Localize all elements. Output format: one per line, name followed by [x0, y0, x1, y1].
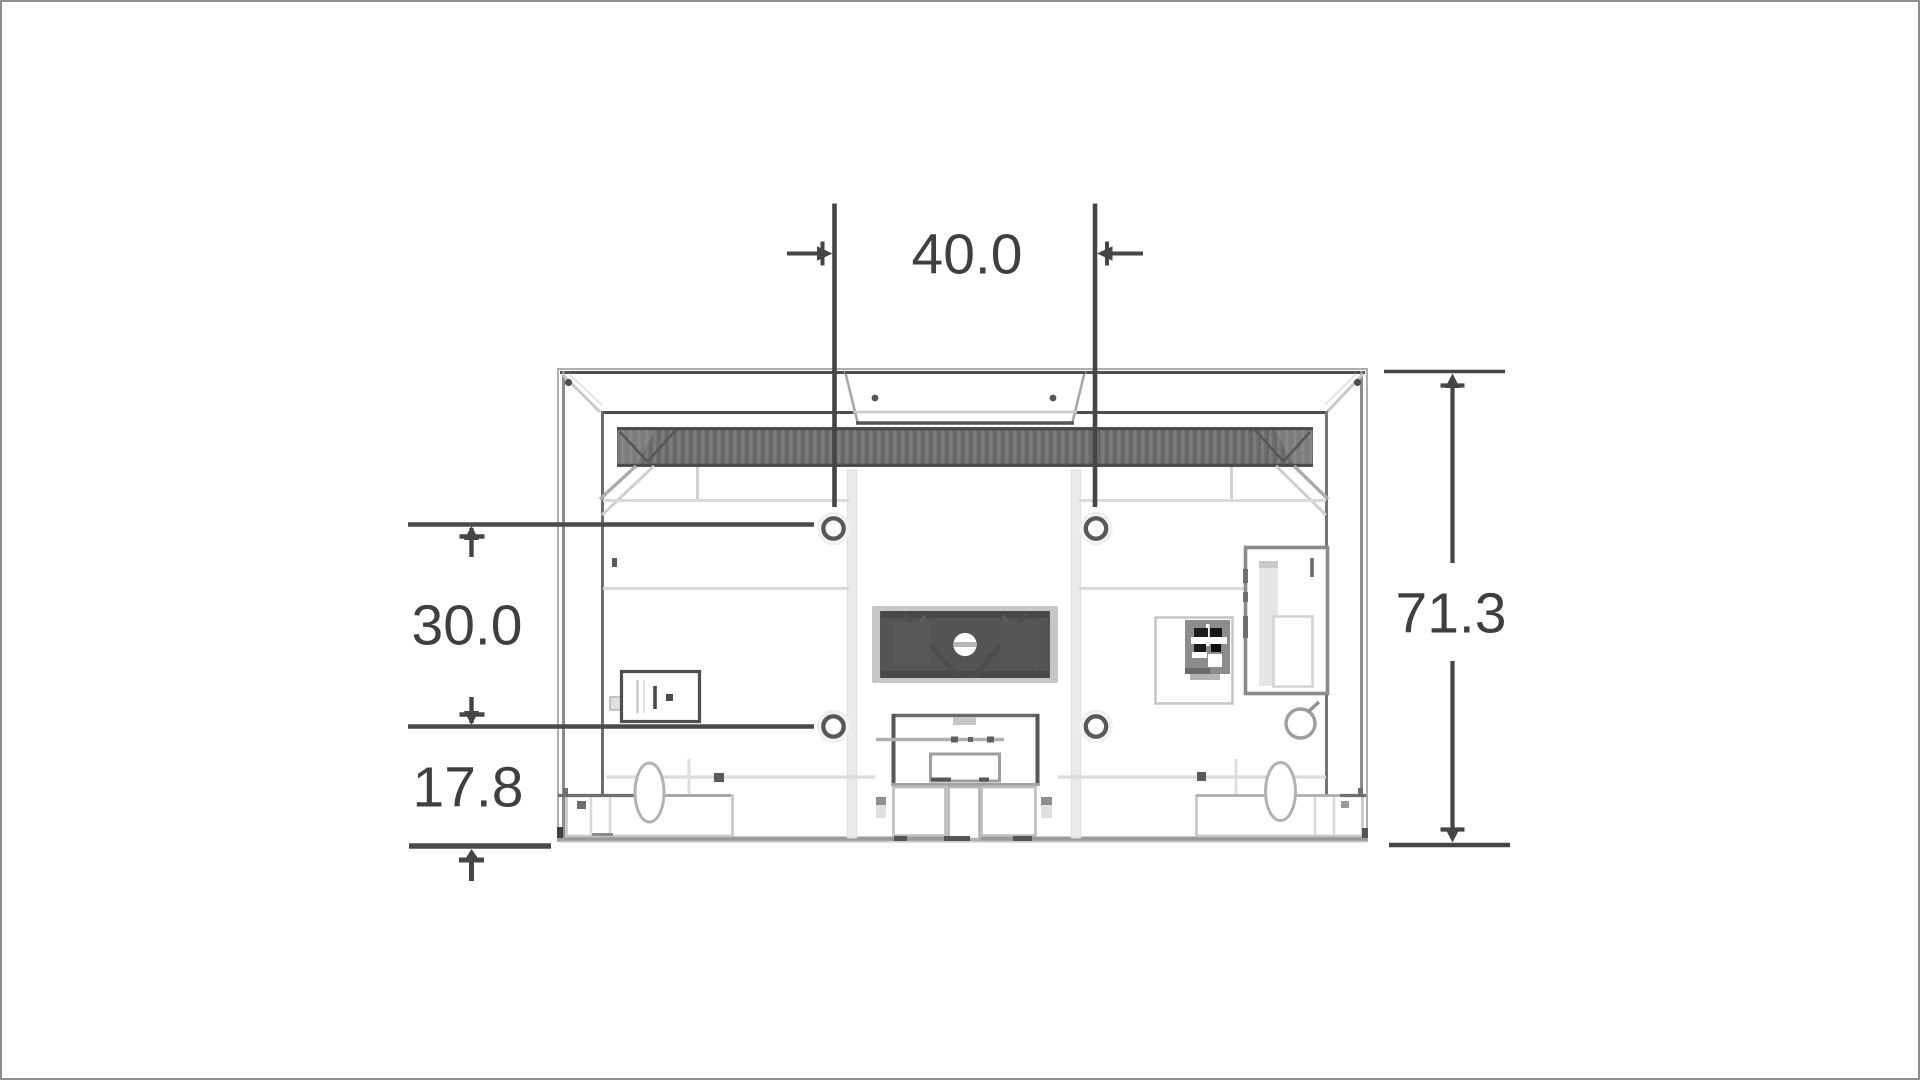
svg-text:17.8: 17.8 — [413, 756, 524, 820]
svg-text:30.0: 30.0 — [412, 594, 523, 658]
svg-text:71.3: 71.3 — [1396, 582, 1507, 646]
svg-text:40.0: 40.0 — [912, 223, 1023, 287]
